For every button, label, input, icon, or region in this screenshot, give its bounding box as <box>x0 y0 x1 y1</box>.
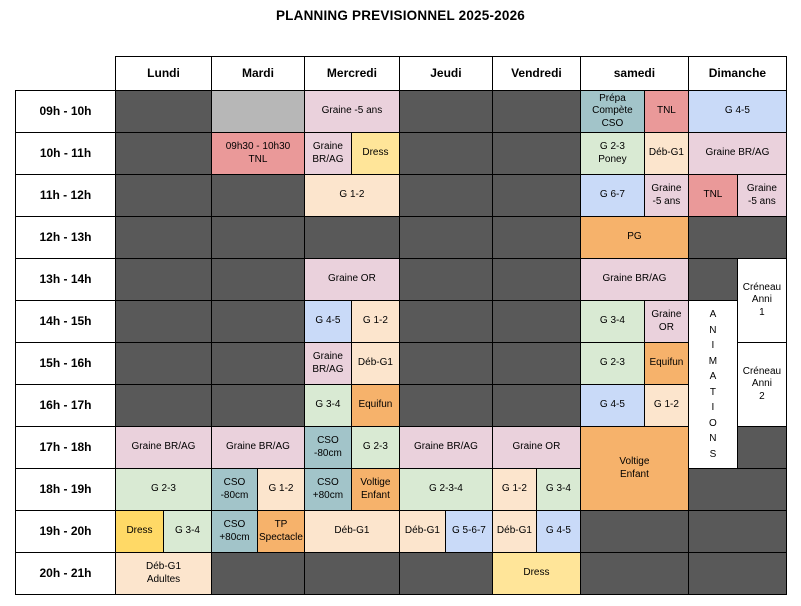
creneau-anni-1-cell: Créneau Anni 1 <box>737 259 786 343</box>
planning-table: LundiMardiMercrediJeudiVendredisamediDim… <box>15 56 787 595</box>
time-label: 17h - 18h <box>16 427 116 469</box>
empty-cell <box>492 217 580 259</box>
activity-cell: G 2-3-4 <box>399 469 492 511</box>
activity-cell: G 3-4 <box>304 385 351 427</box>
empty-cell <box>399 217 492 259</box>
empty-cell <box>212 175 305 217</box>
activity-cell: G 3-4 <box>164 511 212 553</box>
creneau-anni-2-cell: Créneau Anni 2 <box>737 343 786 427</box>
empty-cell <box>116 385 212 427</box>
activity-cell: TNL <box>644 91 688 133</box>
activity-cell: Déb-G1 <box>492 511 536 553</box>
activity-cell: Déb-G1 <box>644 133 688 175</box>
corner-empty-cell <box>16 57 116 91</box>
activity-cell: G 3-4 <box>536 469 580 511</box>
day-header: Mercredi <box>304 57 399 91</box>
activity-cell: TP Spectacle <box>258 511 305 553</box>
time-label: 16h - 17h <box>16 385 116 427</box>
activity-cell: Graine OR <box>492 427 580 469</box>
day-header: Lundi <box>116 57 212 91</box>
activity-cell: G 2-3 Poney <box>580 133 644 175</box>
empty-cell <box>212 301 305 343</box>
empty-cell <box>688 511 786 553</box>
activity-cell: G 1-2 <box>304 175 399 217</box>
empty-cell <box>492 259 580 301</box>
empty-cell <box>492 301 580 343</box>
empty-cell <box>492 343 580 385</box>
empty-cell <box>116 301 212 343</box>
empty-cell <box>688 469 786 511</box>
empty-cell <box>399 385 492 427</box>
header-row: LundiMardiMercrediJeudiVendredisamediDim… <box>16 57 787 91</box>
day-header: Mardi <box>212 57 305 91</box>
empty-cell <box>399 259 492 301</box>
planning-row: 13h - 14hGraine ORGraine BR/AGCréneau An… <box>16 259 787 301</box>
activity-cell: Equifun <box>351 385 399 427</box>
planning-row: 16h - 17hG 3-4EquifunG 4-5G 1-2 <box>16 385 787 427</box>
empty-cell <box>212 259 305 301</box>
activity-cell: G 2-3 <box>580 343 644 385</box>
time-label: 15h - 16h <box>16 343 116 385</box>
activity-cell: Equifun <box>644 343 688 385</box>
empty-cell <box>688 553 786 595</box>
time-label: 18h - 19h <box>16 469 116 511</box>
page-title: PLANNING PREVISIONNEL 2025-2026 <box>0 8 801 23</box>
empty-cell <box>116 343 212 385</box>
empty-cell <box>492 175 580 217</box>
animations-cell: A N I M A T I O N S <box>688 301 737 469</box>
empty-cell <box>492 385 580 427</box>
activity-cell: CSO +80cm <box>212 511 258 553</box>
activity-cell: G 4-5 <box>580 385 644 427</box>
activity-cell: G 2-3 <box>351 427 399 469</box>
activity-cell: Prépa Compète CSO <box>580 91 644 133</box>
empty-cell <box>399 343 492 385</box>
empty-cell <box>399 553 492 595</box>
empty-cell <box>688 217 786 259</box>
empty-cell <box>580 511 688 553</box>
empty-cell <box>688 259 737 301</box>
empty-cell <box>399 301 492 343</box>
time-label: 20h - 21h <box>16 553 116 595</box>
activity-cell: Graine BR/AG <box>304 343 351 385</box>
activity-cell: Graine OR <box>304 259 399 301</box>
empty-cell <box>580 553 688 595</box>
day-header: samedi <box>580 57 688 91</box>
activity-cell: 09h30 - 10h30 TNL <box>212 133 305 175</box>
time-label: 10h - 11h <box>16 133 116 175</box>
time-label: 14h - 15h <box>16 301 116 343</box>
time-label: 19h - 20h <box>16 511 116 553</box>
activity-cell: Dress <box>116 511 164 553</box>
activity-cell: G 2-3 <box>116 469 212 511</box>
empty-cell <box>492 133 580 175</box>
day-header: Jeudi <box>399 57 492 91</box>
activity-cell: TNL <box>688 175 737 217</box>
activity-cell: G 6-7 <box>580 175 644 217</box>
time-label: 12h - 13h <box>16 217 116 259</box>
activity-cell: Déb-G1 Adultes <box>116 553 212 595</box>
activity-cell: G 3-4 <box>580 301 644 343</box>
activity-cell: G 1-2 <box>351 301 399 343</box>
empty-cell <box>399 133 492 175</box>
activity-cell: G 4-5 <box>304 301 351 343</box>
empty-cell <box>399 91 492 133</box>
empty-cell <box>492 91 580 133</box>
activity-cell: Graine BR/AG <box>688 133 786 175</box>
empty-cell <box>212 343 305 385</box>
activity-cell: Graine -5 ans <box>737 175 786 217</box>
activity-cell: CSO -80cm <box>212 469 258 511</box>
activity-cell: Voltige Enfant <box>351 469 399 511</box>
day-header: Dimanche <box>688 57 786 91</box>
activity-cell: G 1-2 <box>644 385 688 427</box>
planning-row: 20h - 21hDéb-G1 AdultesDress <box>16 553 787 595</box>
empty-cell <box>737 427 786 469</box>
planning-row: 17h - 18hGraine BR/AGGraine BR/AGCSO -80… <box>16 427 787 469</box>
empty-cell <box>212 385 305 427</box>
time-label: 11h - 12h <box>16 175 116 217</box>
activity-cell: G 4-5 <box>536 511 580 553</box>
activity-cell: G 4-5 <box>688 91 786 133</box>
empty-cell <box>399 175 492 217</box>
time-label: 13h - 14h <box>16 259 116 301</box>
activity-cell: G 1-2 <box>258 469 305 511</box>
activity-cell: Graine BR/AG <box>580 259 688 301</box>
activity-cell: G 5-6-7 <box>445 511 492 553</box>
day-header: Vendredi <box>492 57 580 91</box>
activity-cell: PG <box>580 217 688 259</box>
empty-cell <box>116 217 212 259</box>
activity-cell: G 1-2 <box>492 469 536 511</box>
activity-cell: Voltige Enfant <box>580 427 688 511</box>
activity-cell: Déb-G1 <box>351 343 399 385</box>
planning-page: PLANNING PREVISIONNEL 2025-2026 LundiMar… <box>0 0 801 606</box>
empty-cell <box>116 259 212 301</box>
empty-cell <box>116 91 212 133</box>
empty-cell <box>116 175 212 217</box>
activity-cell: Graine BR/AG <box>304 133 351 175</box>
time-label: 09h - 10h <box>16 91 116 133</box>
activity-cell: Graine BR/AG <box>399 427 492 469</box>
activity-cell: CSO +80cm <box>304 469 351 511</box>
activity-cell: Graine BR/AG <box>116 427 212 469</box>
empty-cell <box>304 553 399 595</box>
planning-row: 12h - 13hPG <box>16 217 787 259</box>
empty-cell <box>116 133 212 175</box>
activity-cell: Graine OR <box>644 301 688 343</box>
empty-cell <box>304 217 399 259</box>
activity-cell: Déb-G1 <box>304 511 399 553</box>
empty-cell <box>212 553 305 595</box>
activity-cell: Déb-G1 <box>399 511 445 553</box>
planning-row: 15h - 16hGraine BR/AGDéb-G1G 2-3EquifunC… <box>16 343 787 385</box>
activity-cell: Graine -5 ans <box>304 91 399 133</box>
empty-cell <box>212 217 305 259</box>
planning-row: 11h - 12hG 1-2G 6-7Graine -5 ansTNLGrain… <box>16 175 787 217</box>
activity-cell: Graine -5 ans <box>644 175 688 217</box>
planning-row: 10h - 11h09h30 - 10h30 TNLGraine BR/AGDr… <box>16 133 787 175</box>
activity-cell: Dress <box>351 133 399 175</box>
planning-row: 19h - 20hDressG 3-4CSO +80cmTP Spectacle… <box>16 511 787 553</box>
empty-cell <box>212 91 305 133</box>
activity-cell: Graine BR/AG <box>212 427 305 469</box>
planning-row: 14h - 15hG 4-5G 1-2G 3-4Graine ORA N I M… <box>16 301 787 343</box>
activity-cell: Dress <box>492 553 580 595</box>
planning-row: 09h - 10hGraine -5 ansPrépa Compète CSOT… <box>16 91 787 133</box>
activity-cell: CSO -80cm <box>304 427 351 469</box>
